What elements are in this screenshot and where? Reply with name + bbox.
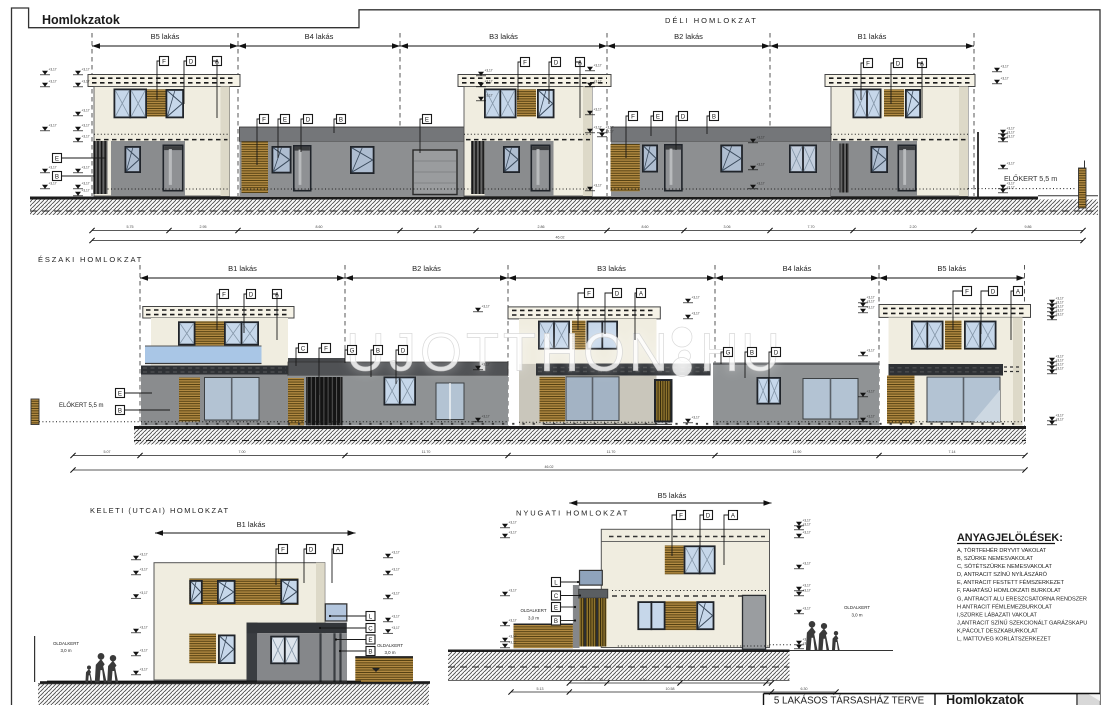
- svg-text:B3 lakás: B3 lakás: [489, 32, 518, 41]
- svg-text:+3,17: +3,17: [482, 305, 490, 309]
- svg-text:B: B: [55, 173, 59, 180]
- svg-text:+3,17: +3,17: [757, 163, 765, 167]
- svg-text:+3,17: +3,17: [82, 80, 90, 84]
- svg-text:D: D: [615, 290, 620, 297]
- svg-text:2.86: 2.86: [538, 225, 545, 229]
- svg-text:F: F: [965, 288, 969, 295]
- svg-text:+3,17: +3,17: [485, 94, 493, 98]
- svg-text:+3,17: +3,17: [140, 553, 148, 557]
- svg-text:11.70: 11.70: [422, 450, 431, 454]
- svg-text:K,PÁCOLT DESZKABURKOLAT: K,PÁCOLT DESZKABURKOLAT: [957, 628, 1038, 635]
- svg-text:+3,17: +3,17: [82, 68, 90, 72]
- svg-text:+3,17: +3,17: [49, 166, 57, 170]
- svg-text:+3,17: +3,17: [82, 135, 90, 139]
- svg-text:F, FAHATÁSÚ HOMLOKZATI BURKOLA: F, FAHATÁSÚ HOMLOKZATI BURKOLAT: [957, 587, 1061, 594]
- svg-text:E: E: [554, 604, 558, 611]
- svg-text:C, SÖTÉTSZÜRKE NEMESVAKOLAT: C, SÖTÉTSZÜRKE NEMESVAKOLAT: [957, 563, 1052, 570]
- svg-text:B4 lakás: B4 lakás: [305, 32, 334, 41]
- svg-text:+3,17: +3,17: [803, 607, 811, 611]
- svg-text:4.75: 4.75: [435, 225, 442, 229]
- svg-text:Homlokzatok: Homlokzatok: [42, 13, 120, 27]
- svg-text:B5 lakás: B5 lakás: [151, 32, 180, 41]
- svg-text:+3,17: +3,17: [392, 626, 400, 630]
- svg-text:B1 lakás: B1 lakás: [228, 264, 257, 273]
- svg-text:+3,17: +3,17: [1056, 418, 1064, 422]
- svg-text:+3,17: +3,17: [82, 166, 90, 170]
- svg-text:L: L: [554, 579, 558, 586]
- svg-text:ELŐKERT 5,5 m: ELŐKERT 5,5 m: [59, 402, 103, 409]
- svg-text:Homlokzatok: Homlokzatok: [946, 693, 1024, 705]
- svg-text:B4 lakás: B4 lakás: [783, 264, 812, 273]
- svg-text:5 LAKÁSOS TÁRSASHÁZ TERVE: 5 LAKÁSOS TÁRSASHÁZ TERVE: [774, 696, 925, 705]
- svg-text:+3,17: +3,17: [509, 635, 517, 639]
- svg-text:NYUGATI HOMLOKZAT: NYUGATI HOMLOKZAT: [516, 509, 629, 518]
- svg-text:A, TÖRTFEHÉR DRYVIT VAKOLAT: A, TÖRTFEHÉR DRYVIT VAKOLAT: [957, 547, 1047, 554]
- svg-text:F: F: [222, 291, 226, 298]
- svg-text:+3,17: +3,17: [803, 523, 811, 527]
- svg-text:+3,17: +3,17: [692, 416, 700, 420]
- svg-text:+3,17: +3,17: [867, 415, 875, 419]
- svg-text:E: E: [55, 155, 59, 162]
- svg-text:1.50: 1.50: [585, 678, 592, 682]
- svg-text:+3,17: +3,17: [509, 641, 517, 645]
- svg-text:I,SZÜRKE LÁBAZATI VAKOLAT: I,SZÜRKE LÁBAZATI VAKOLAT: [957, 611, 1037, 618]
- svg-text:3,0 m: 3,0 m: [528, 616, 539, 621]
- svg-text:F: F: [866, 60, 870, 67]
- svg-text:D: D: [896, 60, 901, 67]
- svg-text:46.02: 46.02: [556, 236, 565, 240]
- svg-text:D: D: [774, 349, 779, 356]
- svg-text:2.20: 2.20: [910, 225, 917, 229]
- svg-text:E: E: [425, 116, 429, 123]
- svg-text:D: D: [401, 347, 406, 354]
- svg-text:3,0 m: 3,0 m: [385, 650, 396, 655]
- svg-text:46.02: 46.02: [545, 465, 554, 469]
- svg-text:L: L: [369, 613, 373, 620]
- svg-text:E: E: [118, 390, 122, 397]
- svg-text:D: D: [991, 288, 996, 295]
- svg-text:F: F: [587, 290, 591, 297]
- svg-text:B: B: [118, 407, 122, 414]
- svg-text:+3,17: +3,17: [509, 619, 517, 623]
- svg-text:+3,17: +3,17: [757, 182, 765, 186]
- svg-text:7.70: 7.70: [808, 225, 815, 229]
- svg-text:ANYAGJELÖLÉSEK:: ANYAGJELÖLÉSEK:: [957, 531, 1063, 544]
- svg-text:+3,17: +3,17: [803, 531, 811, 535]
- svg-text:30: 30: [599, 678, 603, 682]
- svg-text:F: F: [679, 512, 683, 519]
- svg-text:2.95: 2.95: [200, 225, 207, 229]
- svg-text:D: D: [249, 291, 254, 298]
- svg-text:E: E: [283, 116, 287, 123]
- svg-text:+3,17: +3,17: [1001, 77, 1009, 81]
- svg-text:F: F: [523, 59, 527, 66]
- svg-text:3,0 m: 3,0 m: [61, 648, 72, 653]
- svg-text:E: E: [656, 113, 660, 120]
- svg-text:G, ANTRACIT ALU ERESZCSATORNA: G, ANTRACIT ALU ERESZCSATORNA RENDSZER: [957, 596, 1087, 602]
- svg-text:D, ANTRACIT SZÍNŰ NYÍLÁSZÁRÓ: D, ANTRACIT SZÍNŰ NYÍLÁSZÁRÓ: [957, 571, 1048, 578]
- svg-text:+3,17: +3,17: [482, 363, 490, 367]
- svg-text:B: B: [339, 116, 343, 123]
- svg-text:B: B: [750, 349, 754, 356]
- svg-text:ÉSZAKI HOMLOKZAT: ÉSZAKI HOMLOKZAT: [38, 255, 143, 264]
- svg-text:J,ANTRACIT SZÍNŰ SZEKCIONÁLT G: J,ANTRACIT SZÍNŰ SZEKCIONÁLT GARÁZSKAPU: [957, 620, 1087, 627]
- svg-text:+3,17: +3,17: [1007, 135, 1015, 139]
- svg-text:+3,17: +3,17: [82, 124, 90, 128]
- svg-text:+3,17: +3,17: [392, 615, 400, 619]
- svg-text:UJOTTHON: UJOTTHON: [346, 323, 672, 383]
- svg-text:F: F: [631, 113, 635, 120]
- svg-text:F: F: [262, 116, 266, 123]
- svg-text:OLDALKERT: OLDALKERT: [844, 605, 870, 610]
- svg-text:+3,17: +3,17: [509, 521, 517, 525]
- svg-text:+3,17: +3,17: [594, 80, 602, 84]
- svg-text:B: B: [554, 618, 558, 625]
- svg-text:G: G: [726, 349, 731, 356]
- svg-text:8.60: 8.60: [642, 225, 649, 229]
- svg-text:B: B: [712, 113, 716, 120]
- svg-text:OLDALKERT: OLDALKERT: [520, 608, 546, 613]
- svg-text:+3,17: +3,17: [49, 124, 57, 128]
- svg-text:+3,17: +3,17: [867, 300, 875, 304]
- svg-text:+3,17: +3,17: [803, 562, 811, 566]
- svg-text:ELŐKERT 5,5 m: ELŐKERT 5,5 m: [1004, 174, 1057, 183]
- svg-text:B1 lakás: B1 lakás: [858, 32, 887, 41]
- svg-text:+3,17: +3,17: [867, 390, 875, 394]
- svg-text:11.90: 11.90: [793, 450, 802, 454]
- svg-text:L, MATTÜVEG KORLÁTSZERKEZET: L, MATTÜVEG KORLÁTSZERKEZET: [957, 636, 1051, 643]
- svg-text:D: D: [306, 116, 311, 123]
- svg-text:+3,17: +3,17: [867, 349, 875, 353]
- svg-text:+3,17: +3,17: [606, 130, 614, 134]
- svg-text:9.86: 9.86: [1025, 225, 1032, 229]
- svg-text:DÉLI HOMLOKZAT: DÉLI HOMLOKZAT: [665, 16, 758, 25]
- svg-text:+3,17: +3,17: [392, 551, 400, 555]
- svg-text:6.30: 6.30: [801, 687, 808, 691]
- svg-text:B2 lakás: B2 lakás: [412, 264, 441, 273]
- svg-text:+3,17: +3,17: [1056, 313, 1064, 317]
- svg-text:C: C: [301, 345, 306, 352]
- svg-text:+3,17: +3,17: [140, 626, 148, 630]
- svg-text:OLDALKERT: OLDALKERT: [377, 643, 403, 648]
- svg-text:D: D: [189, 58, 194, 65]
- svg-text:F: F: [324, 345, 328, 352]
- svg-text:B, SZÜRKE NEMESVAKOLAT: B, SZÜRKE NEMESVAKOLAT: [957, 555, 1034, 562]
- svg-text:D: D: [309, 546, 314, 553]
- svg-text:H ANTRACIT FÉMLEMEZBURKOLAT: H ANTRACIT FÉMLEMEZBURKOLAT: [957, 603, 1052, 610]
- svg-text:+3,17: +3,17: [485, 80, 493, 84]
- svg-text:+3,17: +3,17: [1056, 367, 1064, 371]
- svg-text:5.75: 5.75: [127, 225, 134, 229]
- svg-text:+3,17: +3,17: [1007, 162, 1015, 166]
- svg-text:+3,17: +3,17: [594, 184, 602, 188]
- svg-text:+3,17: +3,17: [49, 68, 57, 72]
- svg-text:OLDALKERT: OLDALKERT: [53, 641, 79, 646]
- svg-text:E: E: [368, 637, 372, 644]
- svg-text:7.00: 7.00: [239, 450, 246, 454]
- svg-text:C: C: [554, 593, 559, 600]
- svg-text:9.40: 9.40: [640, 678, 647, 682]
- svg-text:B3 lakás: B3 lakás: [597, 264, 626, 273]
- svg-text:+3,17: +3,17: [392, 592, 400, 596]
- svg-text:+3,17: +3,17: [482, 415, 490, 419]
- svg-text:C: C: [368, 625, 373, 632]
- svg-text:3.06: 3.06: [724, 225, 731, 229]
- svg-text:E, ANTRACIT FESTETT FÉMSZERKEZ: E, ANTRACIT FESTETT FÉMSZERKEZET: [957, 579, 1065, 586]
- svg-text:+3,17: +3,17: [757, 136, 765, 140]
- svg-text:+3,17: +3,17: [1001, 65, 1009, 69]
- svg-text:+3,17: +3,17: [594, 64, 602, 68]
- svg-text:HU: HU: [700, 323, 782, 383]
- svg-text:+3,17: +3,17: [509, 531, 517, 535]
- svg-text:7.14: 7.14: [949, 450, 956, 454]
- svg-text:+3,17: +3,17: [803, 589, 811, 593]
- svg-text:5.13: 5.13: [537, 687, 544, 691]
- svg-text:8.60: 8.60: [316, 225, 323, 229]
- svg-text:+3,17: +3,17: [49, 182, 57, 186]
- svg-text:+3,17: +3,17: [140, 568, 148, 572]
- svg-text:+3,17: +3,17: [692, 312, 700, 316]
- svg-text:G: G: [350, 347, 355, 354]
- svg-text:D: D: [706, 512, 711, 519]
- svg-text:10.58: 10.58: [666, 687, 675, 691]
- svg-text:+3,17: +3,17: [1007, 186, 1015, 190]
- svg-text:+3,17: +3,17: [49, 80, 57, 84]
- svg-text:+3,17: +3,17: [140, 668, 148, 672]
- svg-text:+3,17: +3,17: [867, 306, 875, 310]
- svg-text:B: B: [368, 648, 372, 655]
- svg-text:+3,17: +3,17: [803, 584, 811, 588]
- svg-text:B1 lakás: B1 lakás: [237, 520, 266, 529]
- svg-text:D: D: [681, 113, 686, 120]
- svg-text:B5 lakás: B5 lakás: [658, 491, 687, 500]
- svg-text:+3,17: +3,17: [140, 591, 148, 595]
- svg-text:D: D: [554, 59, 559, 66]
- svg-text:B: B: [376, 347, 380, 354]
- svg-text:+3,17: +3,17: [509, 589, 517, 593]
- svg-text:F: F: [281, 546, 285, 553]
- svg-text:B5 lakás: B5 lakás: [937, 264, 966, 273]
- svg-text:B2 lakás: B2 lakás: [674, 32, 703, 41]
- svg-text:11.70: 11.70: [607, 450, 616, 454]
- svg-text:30: 30: [766, 678, 770, 682]
- svg-text:3,0 m: 3,0 m: [852, 613, 863, 618]
- svg-text:+3,17: +3,17: [392, 568, 400, 572]
- svg-text:5.07: 5.07: [104, 450, 111, 454]
- svg-text:+3,17: +3,17: [82, 189, 90, 193]
- svg-text:+3,17: +3,17: [692, 296, 700, 300]
- svg-text:+3,17: +3,17: [82, 109, 90, 113]
- svg-text:+3,17: +3,17: [594, 108, 602, 112]
- svg-text:KELETI (UTCAI) HOMLOKZAT: KELETI (UTCAI) HOMLOKZAT: [90, 506, 230, 515]
- svg-text:F: F: [162, 58, 166, 65]
- svg-text:+3,17: +3,17: [82, 182, 90, 186]
- svg-text:+3,17: +3,17: [485, 69, 493, 73]
- svg-text:+3,17: +3,17: [140, 649, 148, 653]
